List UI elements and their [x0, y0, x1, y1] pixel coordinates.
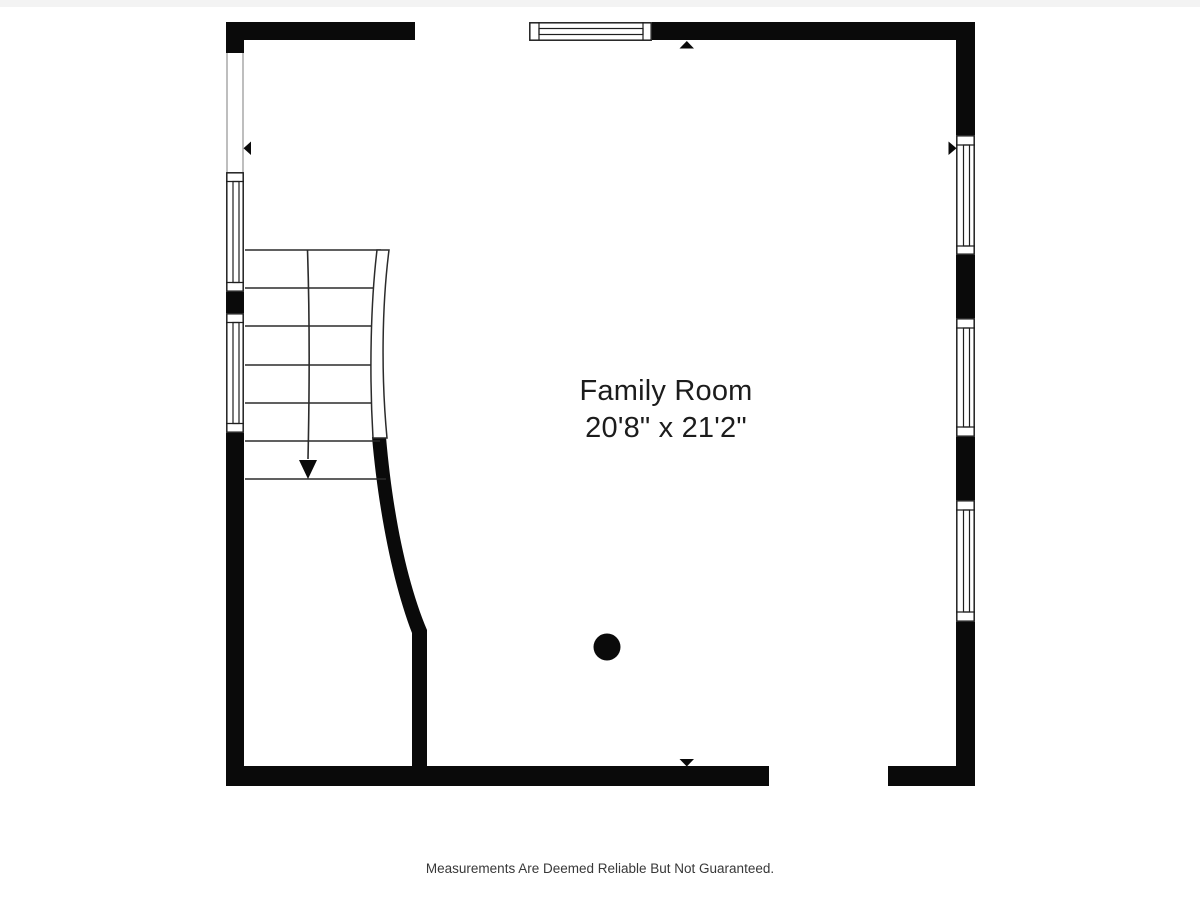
room-dimensions: 20'8" x 21'2" — [516, 410, 816, 447]
arrow-head — [299, 460, 317, 479]
right-window-3 — [956, 501, 975, 621]
window-frame — [227, 173, 243, 291]
right-wall-mid-1 — [956, 255, 975, 318]
floorplan-drawing — [0, 0, 1200, 900]
window-frame — [957, 501, 974, 621]
bottom-wall-left — [226, 766, 769, 786]
window-frame — [530, 23, 651, 40]
marker-top-icon — [680, 41, 695, 49]
bottom-wall-right — [888, 766, 975, 786]
left-wall-opening — [227, 53, 243, 172]
left-wall-mid — [226, 292, 244, 313]
support-column — [594, 634, 621, 661]
footer-disclaimer: Measurements Are Deemed Reliable But Not… — [0, 861, 1200, 877]
top-window — [530, 22, 651, 40]
room-label: Family Room 20'8" x 21'2" — [516, 373, 816, 447]
top-left-corner-wall — [226, 22, 244, 53]
window-frame — [957, 136, 974, 254]
right-wall-bottom — [956, 622, 975, 786]
stair-enclosure-wall — [372, 437, 427, 768]
left-window-1 — [226, 173, 244, 291]
opening-gap — [227, 53, 243, 172]
right-wall-top — [956, 22, 975, 135]
stair-stringer — [371, 250, 389, 438]
window-frame — [957, 319, 974, 436]
right-window-1 — [956, 136, 975, 254]
left-wall-lower — [226, 433, 244, 766]
marker-left-icon — [244, 142, 252, 156]
marker-bottom-icon — [680, 759, 695, 767]
left-window-2 — [226, 314, 244, 432]
room-name: Family Room — [516, 373, 816, 410]
window-frame — [227, 314, 243, 432]
top-wall-left — [226, 22, 415, 40]
right-window-2 — [956, 319, 975, 436]
stairs — [245, 250, 389, 479]
right-wall-mid-2 — [956, 437, 975, 500]
stair-treads — [245, 250, 386, 479]
floorplan: Family Room 20'8" x 21'2" Measurements A… — [0, 0, 1200, 900]
arrow-shaft — [308, 250, 310, 459]
marker-right-icon — [949, 142, 957, 156]
top-wall-right — [652, 22, 975, 40]
